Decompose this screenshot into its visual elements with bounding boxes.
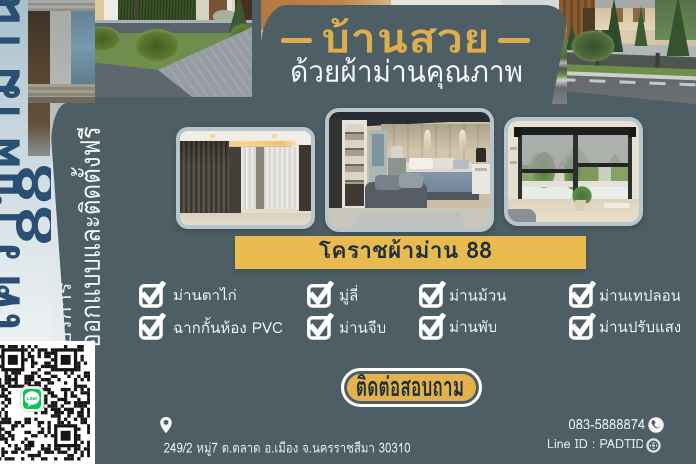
svg-text:LINE: LINE: [27, 396, 37, 401]
